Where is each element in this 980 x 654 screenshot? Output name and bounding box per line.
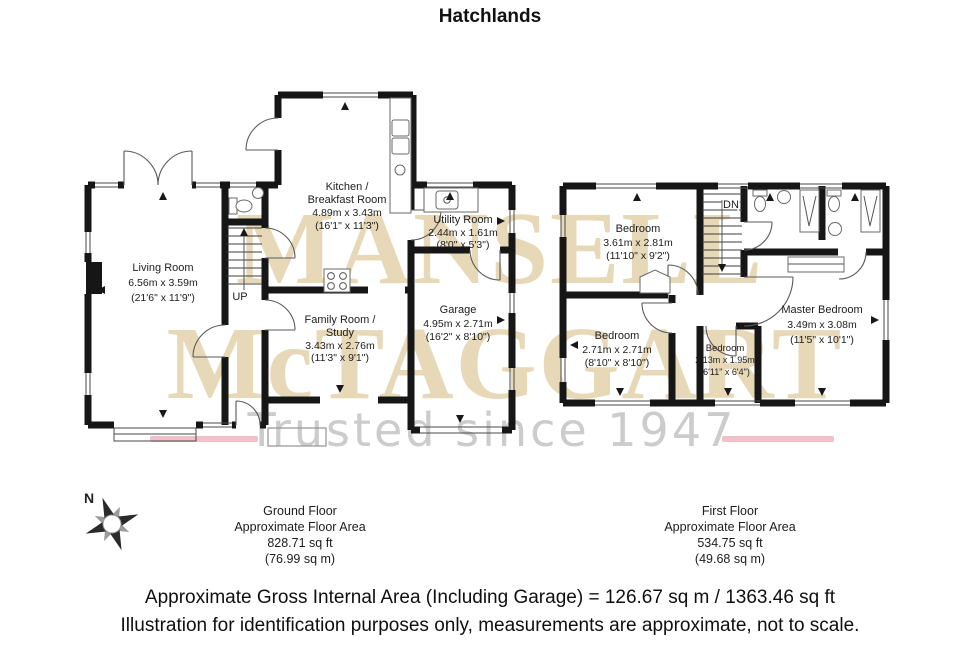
living-room-name: Living Room (132, 262, 193, 274)
ground-floor-caption-line4: (76.99 sq m) (150, 551, 450, 567)
footer-line1: Approximate Gross Internal Area (Includi… (0, 584, 980, 612)
kitchen-metric: 4.89m x 3.43m (312, 207, 382, 219)
kitchen-imperial: (16'1" x 11'3") (315, 220, 379, 232)
kitchen-counter (390, 98, 411, 213)
first-floor-caption-line3: 534.75 sq ft (580, 535, 880, 551)
bedroom1-metric: 3.61m x 2.81m (603, 237, 673, 249)
master-bedroom-name: Master Bedroom (781, 304, 862, 316)
family-room-imperial: (11'3" x 9'1") (311, 352, 369, 364)
ground-floor-caption-line2: Approximate Floor Area (150, 519, 450, 535)
kitchen-sink-icon-2 (392, 138, 409, 154)
compass-rose: N (76, 488, 148, 560)
sink-icon (253, 188, 264, 199)
toilet-bowl-icon (755, 197, 766, 212)
kitchen-name-1: Kitchen / (326, 181, 370, 193)
living-room-metric: 6.56m x 3.59m (128, 277, 198, 289)
bedroom2-metric: 2.71m x 2.71m (582, 344, 652, 356)
watermark-tagline: Trusted since 1947 (247, 403, 737, 457)
compass-north-label: N (84, 490, 94, 506)
bedroom2-name: Bedroom (595, 330, 640, 342)
ground-floor-caption-line3: 828.71 sq ft (150, 535, 450, 551)
kitchen-tap-icon (395, 165, 405, 175)
basin-icon-2 (829, 223, 842, 236)
footer-line2: Illustration for identification purposes… (0, 612, 980, 640)
compass-center (100, 512, 123, 535)
bedroom1-imperial: (11'10" x 9'2") (606, 250, 670, 262)
ground-floor-caption: Ground Floor Approximate Floor Area 828.… (150, 503, 450, 567)
garage-imperial: (16'2" x 8'10") (426, 331, 491, 343)
first-floor-caption: First Floor Approximate Floor Area 534.7… (580, 503, 880, 567)
watermark-dash-right (722, 436, 834, 442)
family-room-metric: 3.43m x 2.76m (305, 340, 375, 352)
utility-name: Utility Room (433, 214, 492, 226)
master-bedroom-imperial: (11'5" x 10'1") (790, 334, 854, 346)
stairs-down-label: DN (723, 199, 739, 211)
first-floor-caption-line2: Approximate Floor Area (580, 519, 880, 535)
master-bedroom-metric: 3.49m x 3.08m (787, 319, 857, 331)
kitchen-sink-icon (392, 120, 409, 136)
bedroom2-imperial: (8'10" x 8'10") (585, 357, 650, 369)
kitchen-units (390, 98, 411, 213)
living-room-imperial: (21'6" x 11'9") (131, 292, 195, 304)
bedroom1-name: Bedroom (616, 223, 661, 235)
stairs-up-label: UP (232, 291, 247, 303)
hob-icon (324, 269, 350, 292)
toilet-tank-icon (753, 190, 767, 196)
utility-imperial: (8'0" x 5'3") (437, 239, 490, 251)
ground-floor-caption-line1: Ground Floor (150, 503, 450, 519)
bathroom-fixtures (753, 190, 880, 236)
master-wardrobe (788, 257, 844, 272)
bedroom3-metric: 2.13m x 1.95m (695, 355, 755, 365)
garage-name: Garage (440, 304, 477, 316)
floorplan-page: Hatchlands MANSELL McTAGGART Trusted sin… (0, 0, 980, 654)
family-room-name-1: Family Room / (305, 314, 377, 326)
bedroom3-imperial: (6'11" x 6'4") (700, 367, 750, 377)
garage-metric: 4.95m x 2.71m (423, 318, 493, 330)
toilet-tank-icon-2 (827, 190, 841, 196)
bedroom3-name: Bedroom (706, 343, 745, 354)
footer: Approximate Gross Internal Area (Includi… (0, 584, 980, 640)
toilet-bowl-icon-2 (829, 197, 840, 212)
utility-metric: 2.44m x 1.61m (428, 227, 498, 239)
toilet-bowl-icon (236, 200, 252, 212)
basin-icon (778, 191, 791, 204)
family-room-name-2: Study (326, 327, 355, 339)
kitchen-name-2: Breakfast Room (308, 194, 387, 206)
first-floor-caption-line4: (49.68 sq m) (580, 551, 880, 567)
first-floor-caption-line1: First Floor (580, 503, 880, 519)
